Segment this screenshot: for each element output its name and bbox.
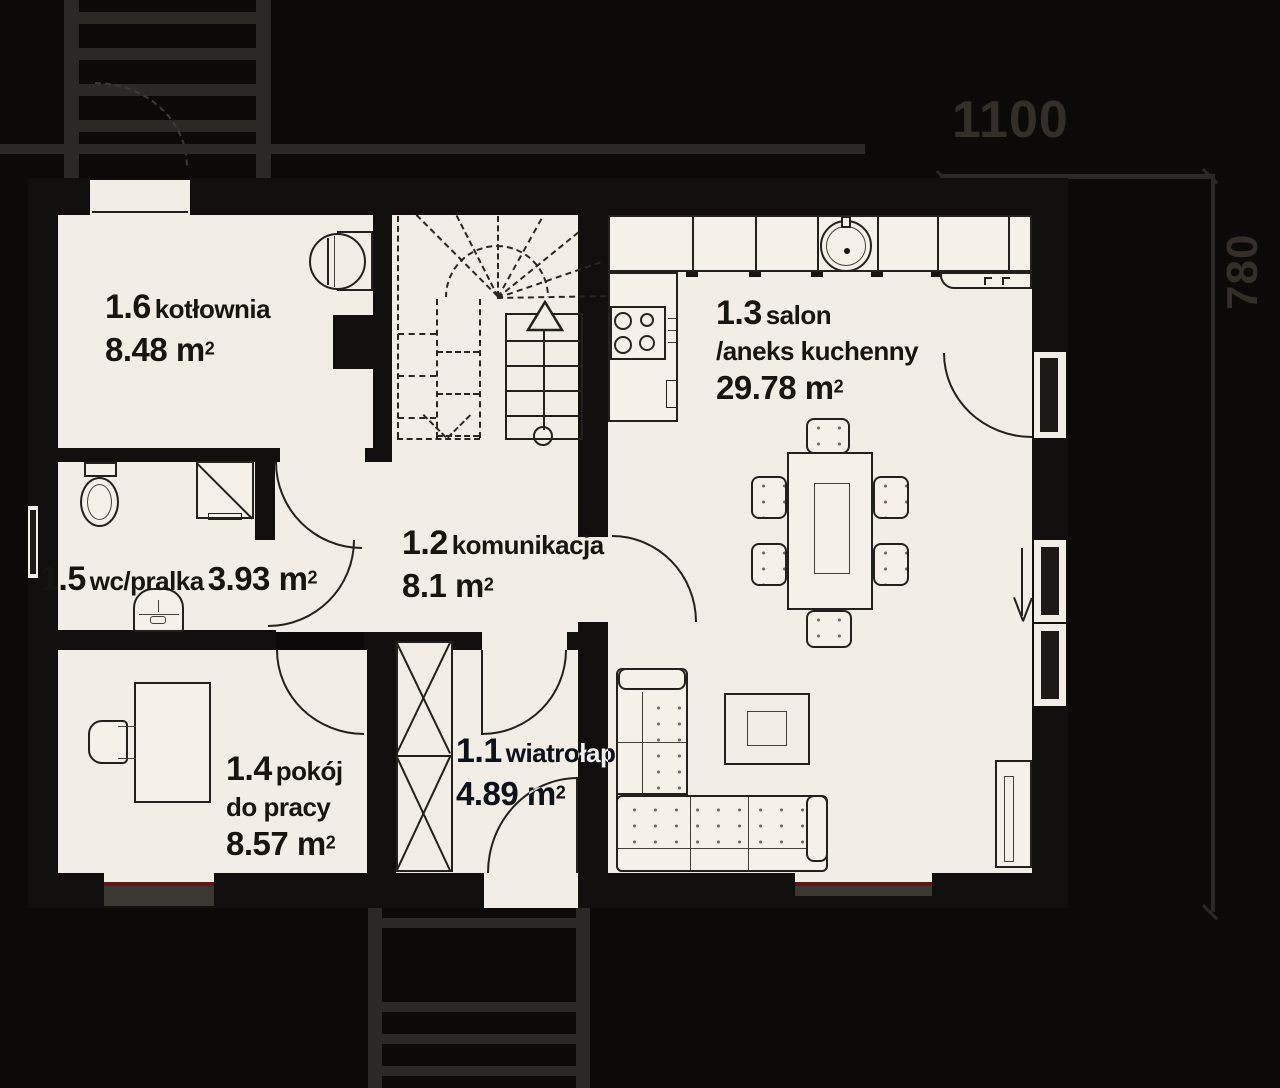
exterior-steps-bottom-rung (382, 1034, 576, 1044)
exterior-steps-bottom-rail-left (368, 908, 382, 1088)
stairs-dashed-tread (437, 351, 479, 353)
terrace-door-glass (1040, 358, 1058, 432)
sofa-armrest-right (806, 795, 828, 862)
stairs-dashed-rail (436, 299, 438, 438)
boiler-divider (327, 238, 329, 285)
sofa-corner-divider (616, 793, 688, 795)
tap-icon (984, 277, 992, 285)
wall-hall-south-right (567, 632, 608, 650)
cabinet-handle (811, 272, 823, 277)
cabinet-handle-west (666, 380, 677, 408)
stairs-dashed-edge-left (397, 216, 399, 438)
washing-machine-line (139, 614, 179, 615)
cabinet-handle (686, 272, 698, 277)
dimension-width-label: 1100 (952, 90, 1069, 150)
sink-inner (826, 226, 866, 266)
washing-machine-knob (158, 600, 159, 612)
exterior-steps-bottom-rung (382, 918, 576, 928)
kitchen-counter-divider (1008, 215, 1010, 272)
boiler-icon (309, 233, 366, 290)
wardrobe-divider (396, 755, 453, 757)
hall-strip-floor (373, 455, 392, 632)
dining-table-runner (814, 483, 850, 574)
coffee-table-inner (747, 711, 787, 746)
wall-wc-east (255, 448, 275, 540)
exterior-steps-top-rung (79, 48, 256, 60)
burner (639, 335, 655, 351)
boiler-divider2 (334, 236, 335, 287)
room-label-salon: 1.3 salon /aneks kuchenny 29.78 m2 (716, 292, 918, 408)
kotlownia-door-opening (275, 448, 365, 462)
stairs-up-arrow (526, 300, 564, 332)
kitchen-counter-divider (877, 215, 879, 272)
sink-drain (844, 248, 850, 254)
stairs-dashed-edge-bottom (397, 438, 480, 440)
window-salon-south-apron (795, 886, 932, 896)
dining-chair (806, 418, 850, 454)
exterior-steps-bottom-rung (382, 1066, 576, 1076)
washing-machine-detail (150, 616, 166, 624)
dining-chair (751, 543, 787, 586)
desk-chair-arm-bottom (118, 758, 136, 759)
floor-plan: 1100 780 (0, 0, 1280, 1088)
stairs-winder-arc-mask (445, 245, 549, 297)
burner (614, 312, 632, 330)
room-label-komunikacja: 1.2 komunikacja 8.1 m2 (402, 522, 604, 606)
exterior-steps-top-rung (79, 12, 256, 24)
dimension-line-right (1211, 174, 1215, 912)
exterior-steps-bottom-rail-right (576, 908, 590, 1088)
dining-chair (873, 476, 909, 519)
sofa-armrest-top (618, 668, 686, 690)
stairs-dashed-rail (479, 299, 481, 438)
oven-vent (668, 330, 676, 331)
stairs-start-circle (533, 426, 553, 446)
stairs-direction-line (543, 330, 545, 430)
shower-tray (208, 513, 242, 520)
chimney-block (333, 315, 387, 369)
sofa-back-line (642, 692, 643, 795)
burner (614, 336, 632, 354)
room-label-wiatrolap: 1.1 wiatrołap 4.89 m2 (456, 730, 615, 814)
dimension-depth-label: 780 (1218, 234, 1268, 310)
dining-chair (751, 476, 787, 519)
burner (640, 313, 654, 327)
room-label-wc: 1.5 wc/pralka 3.93 m2 (40, 558, 317, 601)
dimension-tick (1202, 904, 1218, 920)
entry-direction-arrow-line (1021, 548, 1023, 616)
kitchen-counter-divider (817, 215, 819, 272)
window-salon-east-2-glass (1041, 631, 1059, 699)
window-pokoj-south-apron (104, 886, 214, 906)
oven-vent (668, 342, 676, 343)
sofa-tufting-vertical (648, 700, 684, 790)
fireplace-inner (1004, 776, 1014, 862)
sofa-tufting-horizontal (624, 802, 804, 844)
entrance-stoop (484, 873, 578, 908)
kotlownia-exterior-door-leaf (92, 211, 188, 213)
kotlownia-door-niche2 (90, 180, 190, 215)
window-wc-west-glass (30, 510, 36, 574)
wall-hall-west-lower (367, 632, 396, 873)
sink-faucet (841, 216, 851, 228)
room-label-kotlownia: 1.6 kotłownia 8.48 m2 (105, 286, 270, 370)
desk (134, 682, 211, 803)
sofa-front-edge (618, 848, 806, 849)
wall-wc-pokoj-divider (28, 630, 276, 650)
dimension-line-top-left (0, 144, 865, 154)
cabinet-handle (749, 272, 761, 277)
window-salon-east-1-glass (1041, 547, 1059, 615)
kitchen-counter-divider (937, 215, 939, 272)
room-label-pokoj: 1.4 pokój do pracy 8.57 m2 (226, 748, 343, 864)
tap-icon (1002, 277, 1010, 285)
wall-kotlownia-bottom (28, 448, 280, 462)
stairs-dashed-tread (437, 393, 479, 395)
toilet-tank-icon (84, 462, 117, 477)
oven-vent (668, 318, 676, 319)
kitchen-counter-divider (755, 215, 757, 272)
stairs-dashed-tread (398, 375, 436, 377)
cabinet-handle (871, 272, 883, 277)
desk-chair-arm-top (118, 726, 136, 727)
dining-chair (873, 543, 909, 586)
kitchen-counter-divider (692, 215, 694, 272)
dining-chair (806, 610, 852, 648)
wall-kotlownia-bottom-stub (365, 448, 392, 462)
toilet-bowl-inner (87, 484, 112, 520)
exterior-steps-bottom-rung (382, 1002, 576, 1012)
wiatrolap-door-leaf (481, 650, 483, 735)
stairs-dashed-tread (398, 417, 436, 419)
stairs-dashed-tread (398, 333, 436, 335)
